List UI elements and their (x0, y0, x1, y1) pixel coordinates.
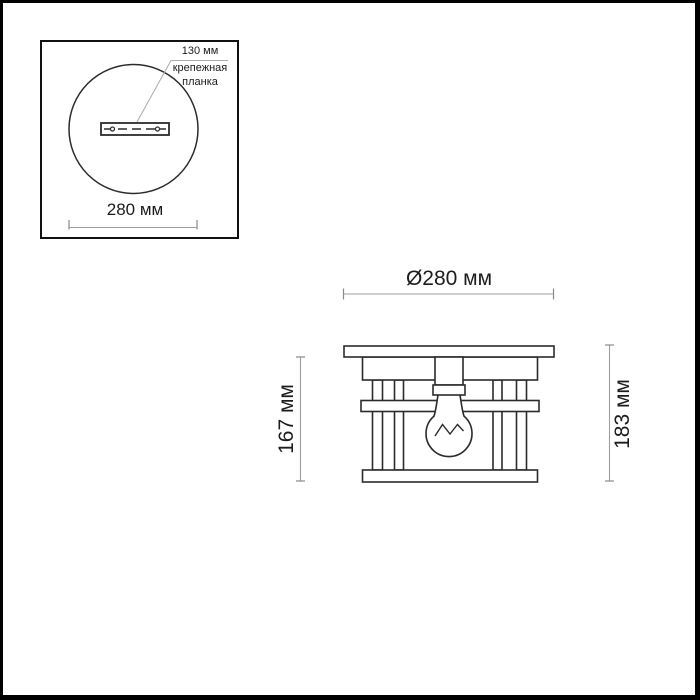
drawing-content: 130 мм крепежная планка 280 мм Ø280 мм 1… (0, 0, 700, 700)
inset-diameter-label: 280 мм (75, 200, 195, 220)
mount-plate-name-label: крепежная планка (150, 61, 250, 89)
drawing-canvas: 130 мм крепежная планка 280 мм Ø280 мм 1… (0, 0, 700, 700)
height-167-label: 167 мм (275, 384, 299, 454)
mount-plate-annotation: 130 мм крепежная планка (150, 44, 250, 89)
mount-hole-right (156, 127, 160, 131)
height-183-label: 183 мм (611, 379, 635, 449)
cage-bar-inner-left (395, 380, 404, 470)
technical-drawing-linework (0, 0, 700, 700)
cage-bar-outer-left (373, 380, 383, 470)
cage-bar-outer-right (517, 380, 527, 470)
socket-cap (433, 385, 465, 395)
front-diameter-label: Ø280 мм (349, 267, 549, 291)
cage-bar-inner-right (493, 380, 502, 470)
mount-plate-size-label: 130 мм (150, 44, 250, 58)
bottom-band (363, 470, 538, 482)
canopy-plate (344, 346, 554, 357)
mount-hole-left (111, 127, 115, 131)
socket-tube (435, 357, 463, 385)
front-view-lantern (344, 346, 554, 482)
